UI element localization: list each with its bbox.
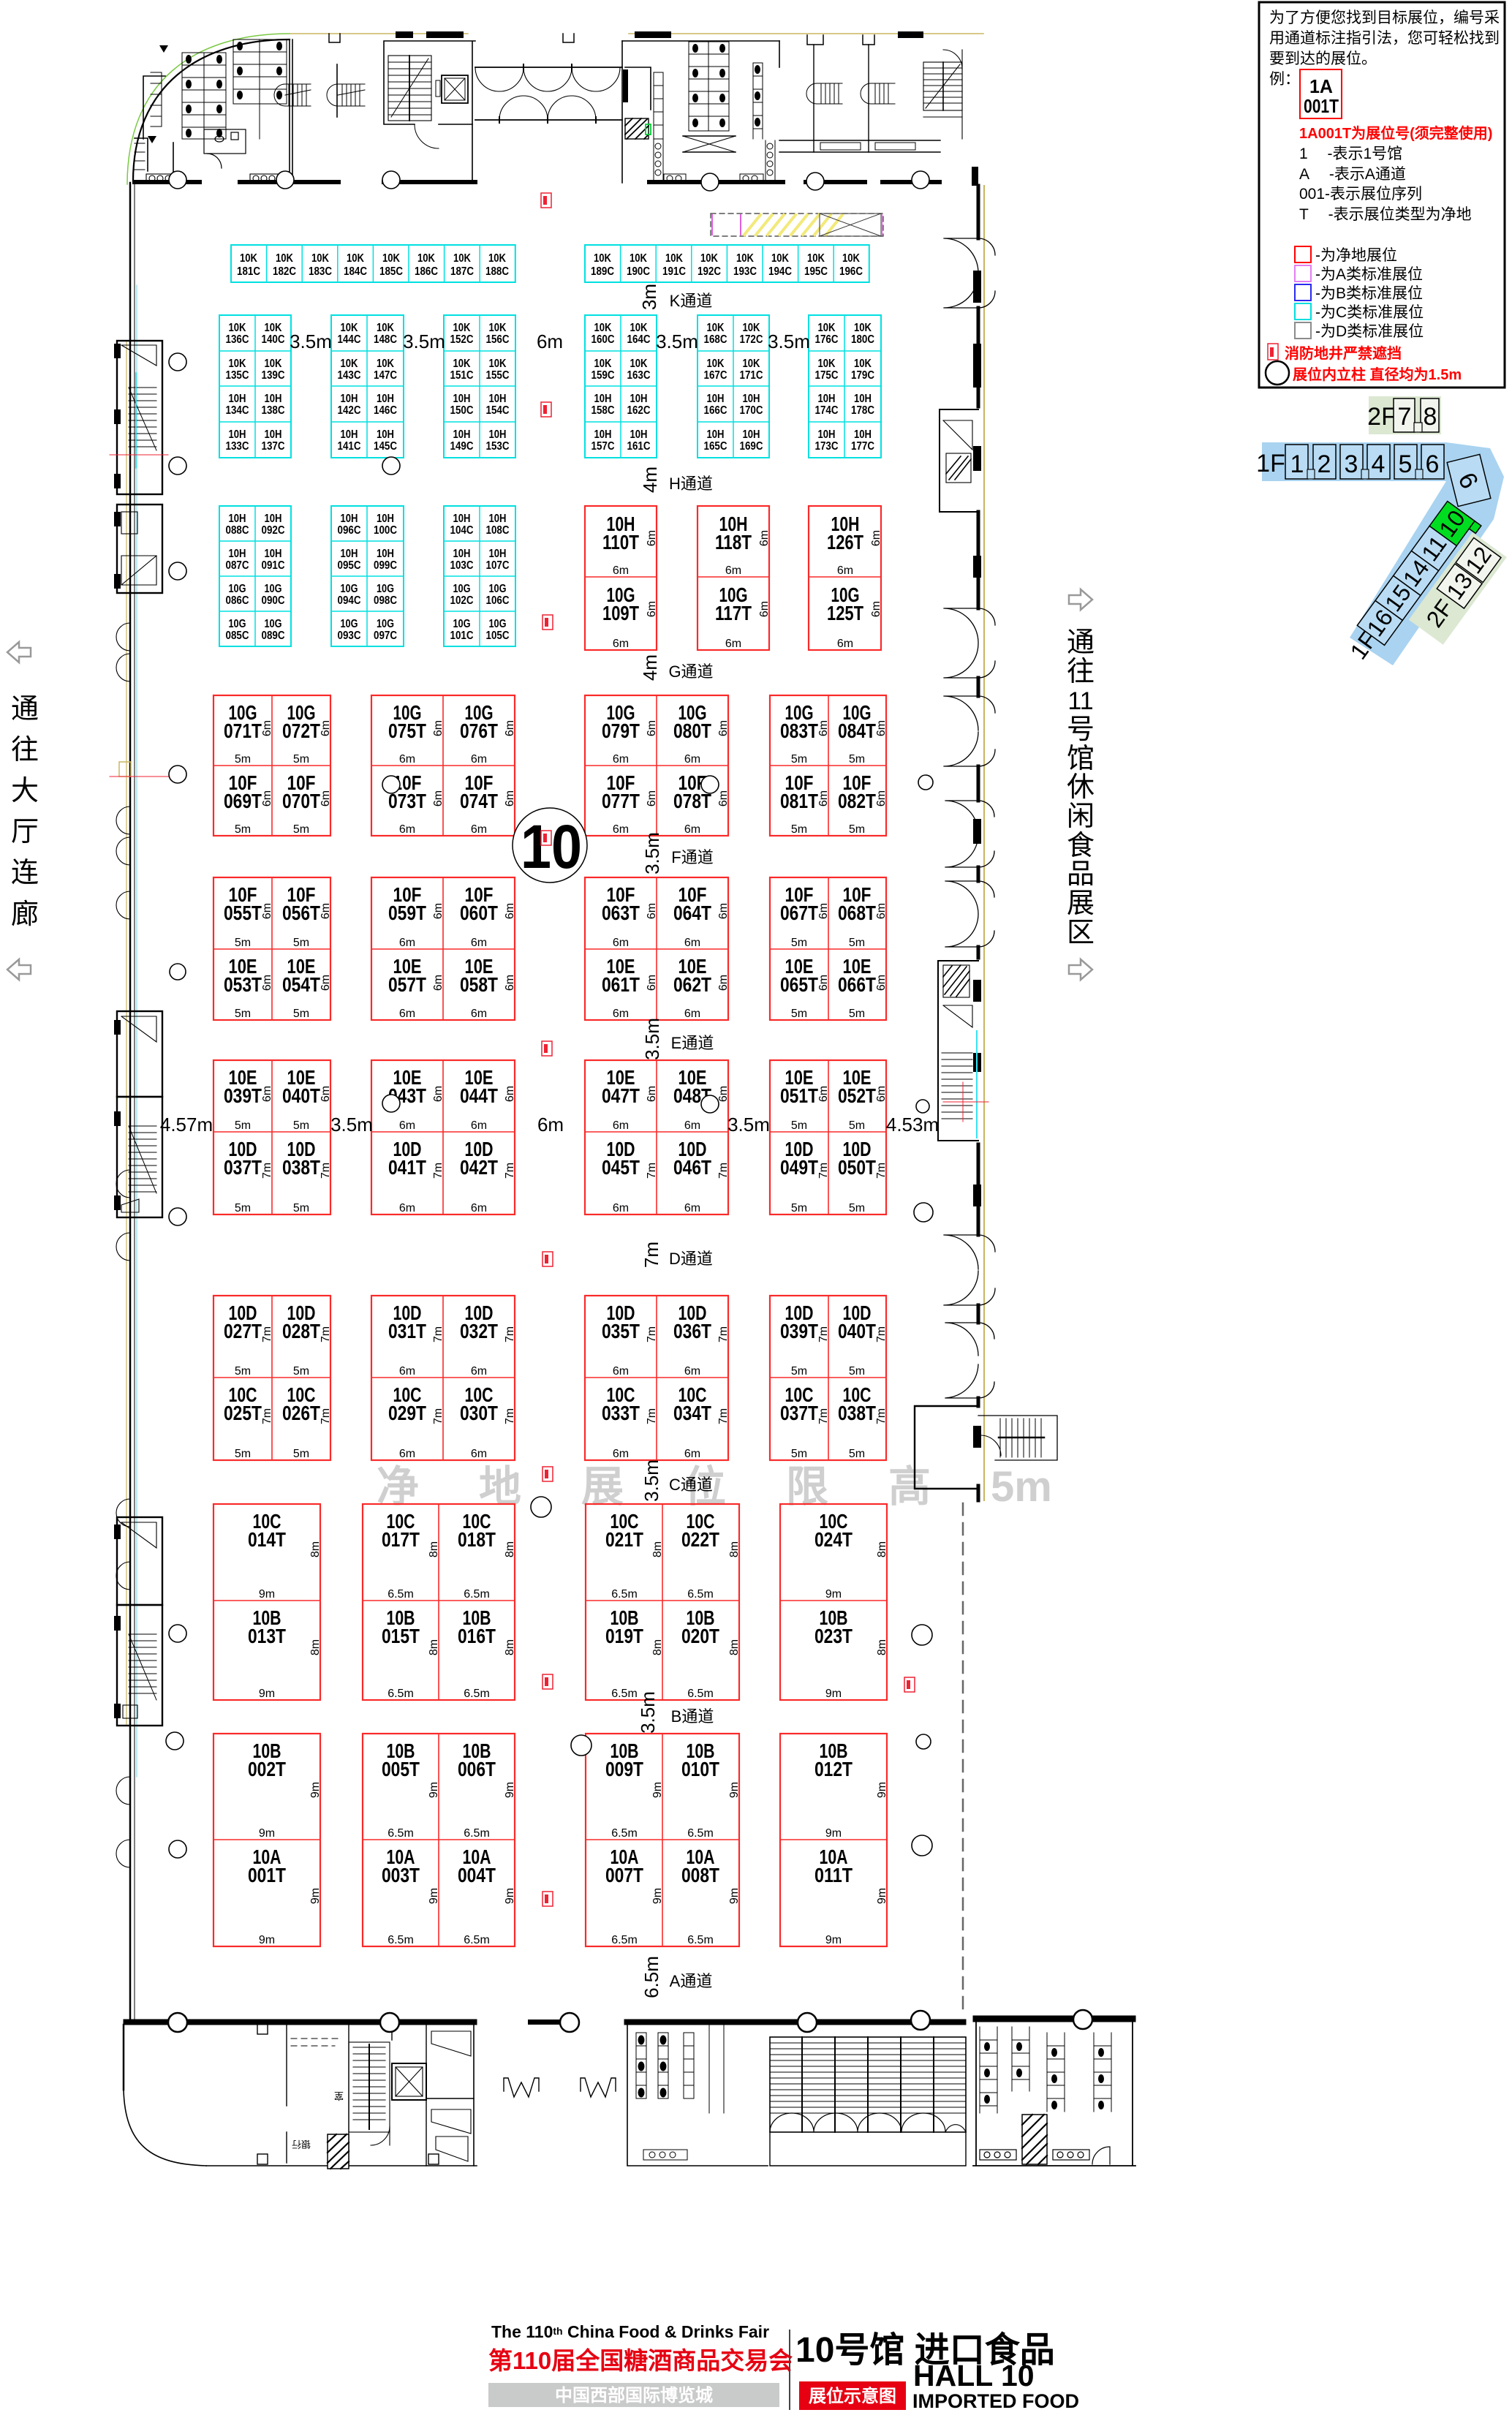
svg-text:银行: 银行 [292,2139,311,2150]
svg-text:068T: 068T [838,902,876,924]
svg-text:6m: 6m [471,1119,487,1132]
svg-text:10H: 10H [341,428,358,441]
svg-text:10G: 10G [229,583,246,595]
svg-text:10H: 10H [265,393,282,405]
svg-text:046T: 046T [673,1156,711,1179]
svg-text:C通道: C通道 [669,1476,713,1494]
svg-text:4: 4 [1372,450,1386,478]
svg-text:号: 号 [1067,714,1095,745]
svg-text:053T: 053T [224,973,262,996]
svg-text:168C: 168C [704,333,727,346]
svg-text:9m: 9m [728,1782,741,1798]
svg-text:085C: 085C [226,630,249,642]
svg-text:7: 7 [1398,403,1412,431]
svg-text:6m: 6m [471,753,487,766]
svg-text:5m: 5m [293,1365,309,1378]
svg-text:6m: 6m [870,530,882,546]
svg-text:6m: 6m [504,790,516,806]
svg-text:049T: 049T [780,1156,818,1179]
svg-text:117T: 117T [715,602,752,624]
svg-text:155C: 155C [486,369,510,382]
svg-text:189C: 189C [591,265,614,278]
svg-text:6m: 6m [432,720,445,736]
svg-text:5m: 5m [235,1202,251,1214]
svg-text:10K: 10K [453,252,472,265]
svg-text:3: 3 [1345,450,1358,478]
svg-text:10K: 10K [489,322,507,334]
svg-text:044T: 044T [460,1084,498,1107]
svg-text:10H: 10H [630,393,648,405]
svg-text:8m: 8m [428,1639,440,1655]
svg-text:10G: 10G [341,618,358,630]
svg-text:6.5m: 6.5m [388,1688,414,1700]
svg-text:厅: 厅 [11,817,39,847]
svg-text:105C: 105C [486,630,510,642]
svg-text:10K: 10K [382,252,401,265]
svg-text:5: 5 [1399,450,1413,478]
svg-text:143C: 143C [338,369,361,382]
svg-text:063T: 063T [602,902,640,924]
svg-text:10H: 10H [743,428,760,441]
svg-text:166C: 166C [704,404,727,417]
svg-text:135C: 135C [226,369,249,382]
svg-text:184C: 184C [344,265,367,278]
svg-text:10K: 10K [630,358,649,370]
svg-text:F通道: F通道 [671,848,713,866]
svg-text:1F: 1F [1256,450,1285,477]
svg-text:6.5m: 6.5m [611,1688,638,1700]
svg-text:7m: 7m [504,1163,516,1179]
svg-text:为了方便您找到目标展位，编号采: 为了方便您找到目标展位，编号采 [1269,10,1500,26]
svg-text:7m: 7m [432,1408,445,1424]
svg-text:173C: 173C [815,440,839,453]
svg-text:10H: 10H [341,548,358,560]
svg-text:185C: 185C [379,265,403,278]
svg-text:076T: 076T [460,719,498,742]
svg-text:3.5m: 3.5m [637,1691,659,1734]
svg-text:6m: 6m [817,1086,830,1102]
svg-text:10K: 10K [488,252,507,265]
svg-text:5m: 5m [791,1448,807,1460]
svg-text:039T: 039T [780,1320,818,1342]
svg-text:6m: 6m [684,1119,700,1132]
svg-text:E通道: E通道 [671,1034,714,1052]
svg-text:6m: 6m [399,1448,415,1460]
svg-text:10H: 10H [265,428,282,441]
svg-text:145C: 145C [374,440,397,453]
svg-text:6.5m: 6.5m [687,1588,714,1601]
svg-text:5m: 5m [849,1202,865,1214]
svg-text:10G: 10G [377,583,394,595]
svg-text:5m: 5m [791,937,807,949]
svg-text:10K: 10K [707,322,725,334]
svg-text:025T: 025T [224,1402,262,1424]
svg-text:014T: 014T [248,1528,286,1551]
svg-text:6m: 6m [817,975,830,991]
svg-text:10H: 10H [707,393,725,405]
svg-text:133C: 133C [226,440,249,453]
svg-text:10K: 10K [453,322,472,334]
svg-text:6m: 6m [399,937,415,949]
svg-text:休: 休 [1067,772,1095,803]
svg-text:6m: 6m [432,903,445,919]
svg-text:151C: 151C [450,369,474,382]
svg-text:060T: 060T [460,902,498,924]
svg-text:5m: 5m [293,823,309,836]
svg-text:152C: 152C [450,333,474,346]
svg-text:6m: 6m [613,1365,629,1378]
svg-text:7m: 7m [504,1408,516,1424]
svg-text:6.5m: 6.5m [611,1588,638,1601]
svg-text:108C: 108C [486,524,510,537]
svg-text:156C: 156C [486,333,510,346]
svg-text:164C: 164C [627,333,651,346]
svg-text:10H: 10H [489,393,507,405]
svg-text:064T: 064T [673,902,711,924]
svg-text:4m: 4m [639,654,661,681]
svg-text:G通道: G通道 [668,662,713,681]
svg-text:H通道: H通道 [669,475,713,493]
svg-text:042T: 042T [460,1156,498,1179]
svg-text:6m: 6m [613,564,629,577]
svg-text:1 -表示1号馆: 1 -表示1号馆 [1299,146,1402,162]
svg-text:5m: 5m [293,753,309,766]
svg-text:6m: 6m [320,790,332,806]
svg-text:095C: 095C [338,559,361,572]
svg-text:6m: 6m [504,720,516,736]
svg-text:193C: 193C [733,265,757,278]
svg-text:展位示意图: 展位示意图 [809,2386,896,2406]
svg-text:5m: 5m [293,1202,309,1214]
svg-text:-为A类标准展位: -为A类标准展位 [1315,266,1423,283]
svg-text:013T: 013T [248,1625,286,1647]
svg-text:10K: 10K [229,358,247,370]
svg-text:6m: 6m [875,720,888,736]
svg-text:096C: 096C [338,524,361,537]
svg-text:187C: 187C [450,265,474,278]
svg-text:109T: 109T [602,602,639,624]
svg-text:6m: 6m [432,975,445,991]
svg-text:6m: 6m [717,1086,730,1102]
svg-text:057T: 057T [388,973,426,996]
svg-text:045T: 045T [602,1156,640,1179]
svg-text:6.5m: 6.5m [388,1934,414,1946]
svg-text:061T: 061T [602,973,640,996]
svg-text:071T: 071T [224,719,262,742]
svg-text:7m: 7m [261,1408,273,1424]
svg-text:150C: 150C [450,404,474,417]
svg-text:6m: 6m [817,903,830,919]
svg-text:5m: 5m [791,1008,807,1020]
svg-text:137C: 137C [262,440,285,453]
svg-text:5m: 5m [791,1365,807,1378]
svg-text:3.5m: 3.5m [768,330,810,352]
svg-text:059T: 059T [388,902,426,924]
svg-text:126T: 126T [827,531,863,554]
svg-text:052T: 052T [838,1084,876,1107]
svg-text:10: 10 [521,812,582,881]
svg-text:5m: 5m [849,1448,865,1460]
svg-text:10K: 10K [818,322,836,334]
svg-text:3.5m: 3.5m [641,832,663,874]
svg-text:6m: 6m [399,1202,415,1214]
svg-text:091C: 091C [262,559,285,572]
svg-text:005T: 005T [382,1758,420,1780]
svg-text:7m: 7m [646,1163,658,1179]
svg-text:9m: 9m [504,1782,516,1798]
svg-text:6m: 6m [870,601,882,617]
svg-text:7m: 7m [261,1326,273,1342]
svg-text:6m: 6m [537,1114,564,1136]
svg-text:5m: 5m [293,1008,309,1020]
svg-text:104C: 104C [450,524,474,537]
svg-text:6m: 6m [320,903,332,919]
svg-text:110T: 110T [602,531,639,554]
svg-text:017T: 017T [382,1528,420,1551]
svg-text:074T: 074T [460,790,498,812]
svg-text:4.53m: 4.53m [886,1114,939,1136]
svg-text:6m: 6m [717,720,730,736]
svg-text:6m: 6m [875,903,888,919]
svg-text:6.5m: 6.5m [687,1827,714,1840]
svg-text:5m: 5m [849,1008,865,1020]
svg-text:6m: 6m [613,753,629,766]
svg-text:10H: 10H [743,393,760,405]
svg-text:10G: 10G [265,618,282,630]
svg-text:10K: 10K [377,322,395,334]
svg-text:6m: 6m [471,1448,487,1460]
svg-text:5m: 5m [293,937,309,949]
svg-text:2F: 2F [1367,403,1396,431]
svg-text:10K: 10K [229,322,247,334]
svg-text:5m: 5m [293,1119,309,1132]
svg-text:9m: 9m [825,1588,842,1601]
svg-text:004T: 004T [458,1864,496,1886]
svg-text:7m: 7m [817,1326,830,1342]
svg-text:10H: 10H [265,548,282,560]
svg-text:5m: 5m [235,823,251,836]
svg-text:区: 区 [1067,918,1095,948]
svg-text:174C: 174C [815,404,839,417]
svg-text:展: 展 [1067,888,1095,919]
svg-text:183C: 183C [309,265,332,278]
svg-text:6.5m: 6.5m [388,1827,414,1840]
svg-text:9m: 9m [651,1782,664,1798]
svg-text:6m: 6m [758,601,771,617]
svg-text:022T: 022T [681,1528,719,1551]
svg-text:-为C类标准展位: -为C类标准展位 [1315,304,1424,321]
svg-text:9m: 9m [309,1888,322,1904]
svg-text:039T: 039T [224,1084,262,1107]
svg-text:5m: 5m [849,1119,865,1132]
svg-text:062T: 062T [673,973,711,996]
svg-text:6m: 6m [725,638,741,650]
svg-text:6m: 6m [537,330,563,352]
svg-text:003T: 003T [382,1864,420,1886]
svg-text:室: 室 [334,2090,344,2101]
svg-text:11: 11 [1067,687,1093,715]
svg-text:7m: 7m [432,1326,445,1342]
svg-text:10H: 10H [453,548,471,560]
svg-text:007T: 007T [605,1864,643,1886]
svg-text:6m: 6m [613,1119,629,1132]
svg-text:10G: 10G [265,583,282,595]
svg-text:9m: 9m [504,1888,516,1904]
svg-text:7m: 7m [504,1326,516,1342]
svg-text:HALL 10: HALL 10 [913,2359,1035,2392]
svg-text:10H: 10H [818,428,836,441]
svg-text:6m: 6m [684,937,700,949]
svg-text:5m: 5m [849,937,865,949]
svg-text:10K: 10K [594,358,613,370]
svg-text:037T: 037T [224,1156,262,1179]
svg-text:7m: 7m [646,1326,658,1342]
svg-text:159C: 159C [591,369,615,382]
svg-text:087C: 087C [226,559,249,572]
svg-text:099C: 099C [374,559,397,572]
svg-text:7m: 7m [640,1242,662,1268]
svg-text:5m: 5m [235,937,251,949]
svg-text:011T: 011T [814,1864,853,1886]
svg-text:6m: 6m [613,1008,629,1020]
svg-text:10K: 10K [807,252,825,265]
svg-text:031T: 031T [388,1320,426,1342]
svg-text:020T: 020T [681,1625,719,1647]
svg-text:6m: 6m [684,1008,700,1020]
svg-text:8m: 8m [728,1541,741,1557]
svg-text:消防地井严禁遮挡: 消防地井严禁遮挡 [1285,344,1402,362]
svg-text:6m: 6m [613,638,629,650]
svg-text:10K: 10K [417,252,436,265]
svg-text:8m: 8m [651,1541,664,1557]
svg-text:10H: 10H [341,393,358,405]
svg-text:107C: 107C [486,559,510,572]
svg-text:10K: 10K [347,252,365,265]
svg-text:10K: 10K [665,252,684,265]
svg-text:10K: 10K [842,252,861,265]
svg-text:展位内立柱 直径均为1.5m: 展位内立柱 直径均为1.5m [1293,366,1462,383]
svg-text:9m: 9m [428,1782,440,1798]
svg-text:6.5m: 6.5m [611,1827,638,1840]
svg-text:136C: 136C [226,333,249,346]
svg-text:9m: 9m [728,1888,741,1904]
svg-text:闲: 闲 [1067,801,1095,832]
svg-text:7m: 7m [817,1408,830,1424]
svg-text:6.5m: 6.5m [464,1688,490,1700]
svg-text:8m: 8m [728,1639,741,1655]
svg-text:139C: 139C [262,369,285,382]
svg-text:10H: 10H [229,393,246,405]
svg-text:050T: 050T [838,1156,876,1179]
svg-text:8m: 8m [309,1639,322,1655]
svg-text:通: 通 [1067,627,1095,658]
svg-text:9m: 9m [825,1934,842,1946]
svg-text:009T: 009T [605,1758,643,1780]
svg-text:9m: 9m [825,1827,842,1840]
svg-text:10G: 10G [489,583,507,595]
svg-text:K通道: K通道 [670,292,713,310]
svg-text:6m: 6m [646,975,658,991]
svg-text:10H: 10H [489,548,507,560]
svg-text:3.5m: 3.5m [727,1114,770,1136]
svg-text:6m: 6m [684,753,700,766]
svg-text:077T: 077T [602,790,640,812]
svg-text:179C: 179C [851,369,874,382]
svg-text:10K: 10K [700,252,719,265]
svg-text:6m: 6m [471,1202,487,1214]
svg-text:079T: 079T [602,719,640,742]
svg-text:8m: 8m [309,1541,322,1557]
svg-text:075T: 075T [388,719,426,742]
svg-text:10K: 10K [453,358,472,370]
svg-text:6m: 6m [613,823,629,836]
svg-text:6m: 6m [817,790,830,806]
svg-text:6.5m: 6.5m [640,1956,662,1998]
svg-text:3.5m: 3.5m [640,1459,662,1502]
svg-text:6m: 6m [471,937,487,949]
svg-text:1A001T为展位号(须完整使用): 1A001T为展位号(须完整使用) [1299,124,1492,142]
svg-text:往: 往 [11,735,39,766]
svg-text:102C: 102C [450,594,474,607]
svg-text:要到达的展位。: 要到达的展位。 [1269,50,1377,67]
svg-text:10K: 10K [311,252,330,265]
svg-text:10H: 10H [594,393,612,405]
svg-text:6m: 6m [613,937,629,949]
svg-text:106C: 106C [486,594,510,607]
svg-text:081T: 081T [780,790,818,812]
svg-text:6m: 6m [684,1365,700,1378]
svg-text:178C: 178C [851,404,874,417]
svg-text:连: 连 [11,858,39,888]
svg-text:10H: 10H [818,393,836,405]
svg-text:093C: 093C [338,630,361,642]
svg-text:A通道: A通道 [670,1972,713,1990]
svg-text:058T: 058T [460,973,498,996]
svg-text:6m: 6m [261,790,273,806]
svg-text:171C: 171C [740,369,763,382]
svg-text:6m: 6m [471,823,487,836]
svg-text:072T: 072T [282,719,320,742]
svg-text:10H: 10H [229,428,246,441]
svg-text:186C: 186C [415,265,438,278]
svg-text:6m: 6m [399,1008,415,1020]
svg-text:006T: 006T [458,1758,496,1780]
svg-text:5m: 5m [235,1008,251,1020]
svg-text:040T: 040T [282,1084,320,1107]
svg-text:6m: 6m [261,1086,273,1102]
svg-text:149C: 149C [450,440,474,453]
svg-text:134C: 134C [226,404,249,417]
svg-text:153C: 153C [486,440,510,453]
svg-text:154C: 154C [486,404,510,417]
svg-text:6.5m: 6.5m [687,1934,714,1946]
svg-text:6m: 6m [261,720,273,736]
svg-text:7m: 7m [875,1163,888,1179]
svg-text:3.5m: 3.5m [656,330,698,352]
svg-text:6m: 6m [320,1086,332,1102]
svg-text:A -表示A通道: A -表示A通道 [1299,166,1406,183]
svg-text:180C: 180C [851,333,874,346]
svg-text:188C: 188C [485,265,509,278]
svg-text:101C: 101C [450,630,474,642]
svg-text:144C: 144C [338,333,361,346]
svg-text:5m: 5m [791,1119,807,1132]
svg-text:080T: 080T [673,719,711,742]
svg-text:055T: 055T [224,902,262,924]
svg-text:大: 大 [11,776,39,806]
svg-text:8m: 8m [428,1541,440,1557]
svg-text:10H: 10H [377,428,394,441]
